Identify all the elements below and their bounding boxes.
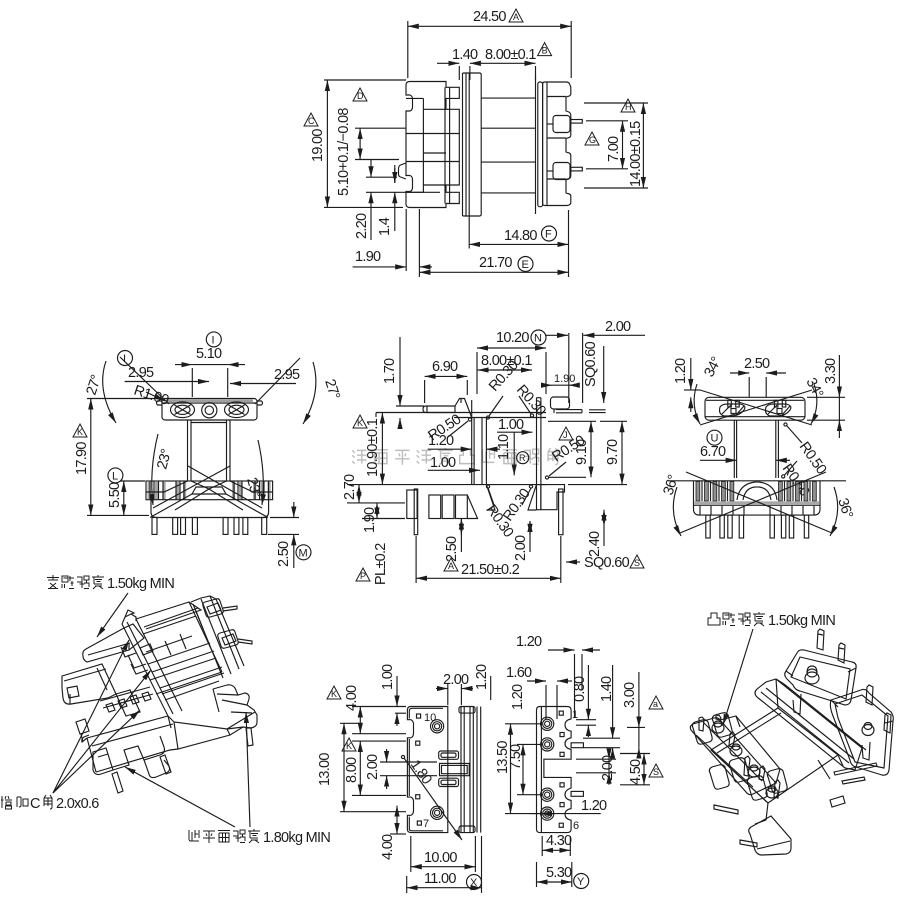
svg-text:1.90: 1.90 — [355, 249, 381, 265]
svg-text:14.80: 14.80 — [504, 228, 537, 244]
svg-text:1.4: 1.4 — [377, 217, 393, 236]
svg-text:C: C — [308, 116, 315, 126]
svg-text:5.50: 5.50 — [107, 482, 123, 508]
svg-text:2.50: 2.50 — [444, 536, 460, 562]
svg-text:A: A — [513, 12, 519, 22]
svg-text:2.00: 2.00 — [605, 319, 631, 335]
svg-text:G: G — [589, 135, 596, 145]
svg-text:SQ0.60: SQ0.60 — [583, 341, 599, 387]
svg-text:S: S — [634, 558, 640, 568]
svg-text:1.60: 1.60 — [506, 665, 532, 681]
svg-text:1.10: 1.10 — [496, 434, 512, 460]
svg-text:3.30: 3.30 — [823, 358, 839, 384]
svg-text:9.10: 9.10 — [574, 439, 590, 465]
svg-text:I: I — [212, 334, 215, 346]
svg-text:E: E — [522, 259, 529, 271]
svg-text:0.80: 0.80 — [572, 676, 588, 702]
svg-text:2.00: 2.00 — [600, 755, 616, 781]
svg-text:K: K — [77, 427, 83, 437]
svg-text:N: N — [534, 333, 542, 345]
svg-text:19.00: 19.00 — [310, 129, 326, 162]
svg-text:1.20: 1.20 — [673, 358, 689, 384]
svg-text:10.20: 10.20 — [496, 330, 529, 346]
svg-text:4.50: 4.50 — [628, 759, 644, 785]
svg-text:H: H — [625, 102, 632, 112]
svg-text:U: U — [711, 433, 719, 445]
svg-text:10.00: 10.00 — [424, 850, 457, 866]
svg-text:2.00: 2.00 — [365, 754, 381, 780]
svg-text:M: M — [299, 547, 308, 559]
svg-text:10.90±0.1: 10.90±0.1 — [365, 418, 381, 477]
svg-text:7.00: 7.00 — [606, 136, 622, 162]
svg-text:4.00: 4.00 — [380, 834, 396, 860]
svg-text:8.00±0.1: 8.00±0.1 — [485, 47, 536, 63]
svg-text:2.95: 2.95 — [128, 365, 154, 381]
svg-text:8.00: 8.00 — [344, 757, 360, 783]
svg-text:2.40: 2.40 — [587, 531, 603, 557]
svg-text:F: F — [545, 229, 552, 241]
svg-text:X: X — [470, 877, 478, 889]
svg-text:2.00: 2.00 — [513, 535, 529, 561]
svg-text:17.90: 17.90 — [74, 442, 90, 475]
svg-text:K: K — [346, 741, 352, 751]
svg-text:1.20: 1.20 — [581, 798, 607, 814]
svg-text:1.50kg MIN: 1.50kg MIN — [768, 613, 835, 629]
svg-text:1.20: 1.20 — [516, 634, 542, 650]
svg-text:21.70: 21.70 — [479, 255, 512, 271]
svg-text:5.30: 5.30 — [546, 865, 572, 881]
svg-text:8.00±0.1: 8.00±0.1 — [481, 353, 532, 369]
svg-text:PL±0.2: PL±0.2 — [373, 543, 389, 585]
svg-text:11.00: 11.00 — [424, 871, 456, 887]
svg-text:2.20: 2.20 — [354, 213, 370, 239]
svg-text:1.00: 1.00 — [430, 455, 456, 471]
svg-text:10: 10 — [424, 712, 436, 724]
svg-text:6.90: 6.90 — [432, 359, 458, 375]
svg-text:5.10: 5.10 — [196, 346, 222, 362]
svg-text:2.00: 2.00 — [443, 672, 469, 688]
svg-text:R: R — [519, 453, 526, 463]
svg-text:6: 6 — [573, 820, 579, 832]
svg-text:Y: Y — [577, 876, 585, 888]
svg-text:J: J — [563, 430, 568, 440]
svg-text:1.00: 1.00 — [498, 417, 524, 433]
svg-text:D: D — [357, 91, 364, 101]
svg-text:1.40: 1.40 — [599, 676, 615, 702]
svg-text:4.30: 4.30 — [546, 833, 572, 849]
svg-text:K: K — [357, 418, 363, 428]
svg-text:9.70: 9.70 — [605, 439, 621, 465]
svg-text:K: K — [331, 689, 337, 699]
svg-text:13.00: 13.00 — [317, 753, 333, 786]
svg-text:1.90: 1.90 — [554, 373, 575, 385]
svg-text:2.50: 2.50 — [744, 356, 770, 372]
svg-text:1.70: 1.70 — [382, 358, 398, 384]
svg-text:4.00: 4.00 — [344, 685, 360, 711]
svg-text:A: A — [448, 561, 454, 571]
svg-text:S: S — [653, 767, 659, 777]
svg-text:24.50: 24.50 — [473, 9, 506, 25]
svg-text:1.00: 1.00 — [380, 664, 396, 690]
svg-text:1.80kg MIN: 1.80kg MIN — [263, 830, 330, 846]
svg-text:5.10+0.1/−0.08: 5.10+0.1/−0.08 — [336, 108, 352, 196]
svg-text:1.20: 1.20 — [428, 433, 454, 449]
svg-text:2.50: 2.50 — [276, 541, 292, 567]
svg-text:6.70: 6.70 — [700, 444, 726, 460]
svg-text:1.90: 1.90 — [362, 507, 378, 533]
svg-text:SQ0.60: SQ0.60 — [584, 555, 630, 571]
svg-text:21.50±0.2: 21.50±0.2 — [461, 562, 520, 578]
svg-text:3.00: 3.00 — [622, 682, 638, 708]
svg-text:2.70: 2.70 — [342, 474, 358, 500]
svg-text:L: L — [112, 470, 118, 482]
svg-text:1.20: 1.20 — [474, 664, 490, 690]
svg-text:2.0x0.6: 2.0x0.6 — [56, 796, 99, 812]
svg-text:14.00±0.15: 14.00±0.15 — [628, 121, 644, 187]
svg-text:C: C — [30, 796, 40, 812]
svg-text:7: 7 — [423, 818, 429, 830]
svg-text:I: I — [123, 353, 126, 365]
svg-text:a: a — [653, 699, 658, 709]
svg-text:7.50: 7.50 — [508, 744, 524, 770]
svg-text:P: P — [360, 571, 366, 581]
svg-text:B: B — [542, 46, 548, 56]
svg-text:1.40: 1.40 — [452, 47, 478, 63]
svg-text:1.20: 1.20 — [510, 684, 526, 710]
svg-text:1.50kg MIN: 1.50kg MIN — [107, 576, 174, 592]
